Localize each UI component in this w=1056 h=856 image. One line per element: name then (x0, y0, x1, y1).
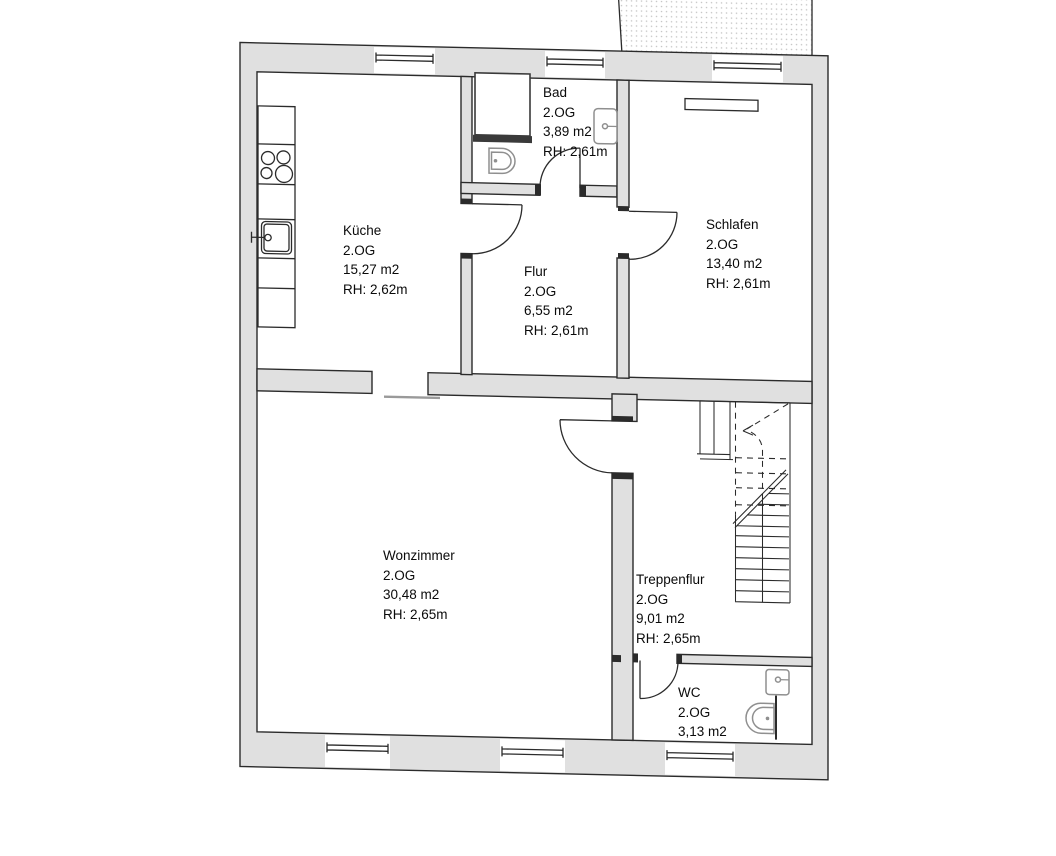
room-label-treppenflur: Treppenflur 2.OG 9,01 m2 RH: 2,65m (636, 570, 705, 648)
room-height: RH: 2,61m (543, 142, 608, 162)
room-floor: 2.OG (343, 241, 408, 261)
room-name: WC (678, 683, 727, 703)
staircase (697, 401, 790, 603)
room-label-bad: Bad 2.OG 3,89 m2 RH: 2,61m (543, 83, 608, 161)
room-area: 6,55 m2 (524, 301, 589, 321)
room-height: RH: 2,61m (706, 274, 771, 294)
wc-fixtures (746, 669, 789, 740)
room-height: RH: 2,62m (343, 280, 408, 300)
room-height: RH: 2,61m (524, 321, 589, 341)
room-label-kueche: Küche 2.OG 15,27 m2 RH: 2,62m (343, 221, 408, 299)
door-wohnzimmer-treppenflur (560, 420, 612, 473)
room-height: RH: 2,65m (383, 605, 455, 625)
room-name: Bad (543, 83, 608, 103)
tilted-drawing-layer (240, 0, 828, 780)
room-name: Flur (524, 262, 589, 282)
opening-threshold (384, 397, 440, 398)
room-floor: 2.OG (383, 566, 455, 586)
wc-toilet-icon (746, 703, 774, 734)
kitchen-counter (251, 106, 295, 328)
window-wohnzimmer-2 (500, 739, 565, 772)
room-label-wohnzimmer: Wonzimmer 2.OG 30,48 m2 RH: 2,65m (383, 546, 455, 624)
room-area: 9,01 m2 (636, 609, 705, 629)
bad-toilet-icon (489, 148, 515, 174)
floor-plan-drawing (0, 0, 1056, 856)
room-floor: 2.OG (706, 235, 771, 255)
room-floor: 2.OG (524, 282, 589, 302)
room-area: 15,27 m2 (343, 260, 408, 280)
door-wc (640, 661, 678, 700)
room-name: Schlafen (706, 215, 771, 235)
room-area: 13,40 m2 (706, 254, 771, 274)
room-height: RH: 2,65m (636, 629, 705, 649)
exterior-walls (240, 42, 828, 779)
floor-plan-page: Küche 2.OG 15,27 m2 RH: 2,62m Bad 2.OG 3… (0, 0, 1056, 856)
room-label-schlafen: Schlafen 2.OG 13,40 m2 RH: 2,61m (706, 215, 771, 293)
stair-walk-line (743, 403, 788, 500)
room-area: 30,48 m2 (383, 585, 455, 605)
room-label-wc: WC 2.OG 3,13 m2 (678, 683, 727, 742)
schlafen-radiator (685, 99, 758, 112)
door-kueche-flur (472, 204, 522, 255)
stair-cut-line (733, 469, 788, 529)
room-label-flur: Flur 2.OG 6,55 m2 RH: 2,61m (524, 262, 589, 340)
room-name: Küche (343, 221, 408, 241)
window-bad (545, 51, 605, 78)
shower-shaft (475, 73, 530, 136)
door-schlafen (629, 211, 677, 260)
balcony-area (618, 0, 812, 58)
room-floor: 2.OG (678, 703, 727, 723)
window-schlafen (712, 55, 783, 83)
wc-sink-icon (766, 669, 789, 695)
room-area: 3,13 m2 (678, 722, 727, 742)
room-name: Treppenflur (636, 570, 705, 590)
room-name: Wonzimmer (383, 546, 455, 566)
window-wohnzimmer-1 (325, 735, 390, 768)
window-wc (665, 743, 735, 777)
interior-walls (257, 72, 812, 745)
room-floor: 2.OG (543, 103, 608, 123)
room-floor: 2.OG (636, 590, 705, 610)
window-kueche (374, 47, 435, 74)
room-area: 3,89 m2 (543, 122, 608, 142)
